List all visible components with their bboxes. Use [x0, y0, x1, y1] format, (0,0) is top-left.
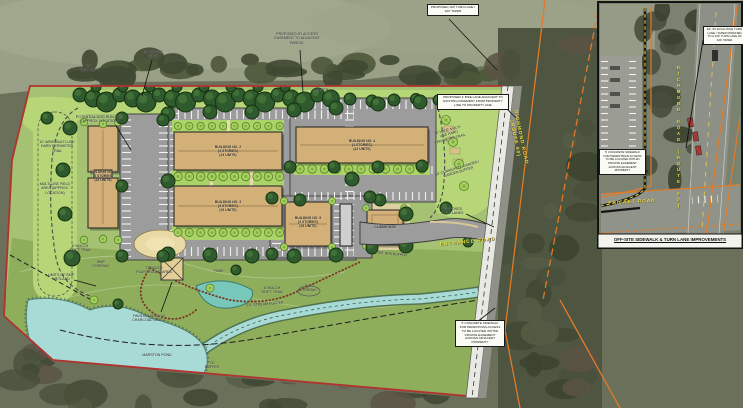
note-bike-lane: PROPOSED 4' BIKE LANE ADJACENT TO EXISTI… [437, 94, 509, 110]
label-playground: TODDLER PLAYGROUND AREA [135, 266, 173, 275]
label-perimeter-trail-west: 10' WIDE MULTI-USE HARD PERIMETER TRAIL [38, 140, 76, 153]
label-buffer-nw: 20' BUFFER [78, 64, 98, 73]
label-pavilion: PAVILION AREA W/ CHARCOAL GRILLS [128, 314, 170, 323]
label-dog-run: POTENTIAL DOG RUN AREA (APPROX. LOCATION… [73, 115, 127, 124]
label-building-1: BUILDING NO. 1 (3 STORIES) (24 UNITS) [86, 170, 120, 182]
label-park: PARK [207, 269, 231, 273]
note-turn-lane: PROPOSED 100' TURN LANE / 100' TAPER [427, 4, 479, 16]
label-wetland-limits: LIMITS OF BMP WETLAND [44, 273, 78, 282]
inset-label-richmond-road: RICHMOND ROAD (ROUTE 60) [676, 62, 681, 212]
site-plan-screenshot: 20' BUFFER EX. WATER AREA 20' BUFFER PRO… [0, 0, 743, 408]
inset-note-turn-lane: EX. 50' EXCLUSIVE TURN LANE / TAPER MODI… [703, 26, 743, 45]
label-building-4: BUILDING NO. 4 (3 STORIES) (42 UNITS) [340, 139, 384, 151]
label-forebay-west: BMP FOREBAY [89, 260, 113, 269]
label-building-5: BUILDING NO. 5 (3 STORIES) (24 UNITS) [288, 216, 328, 228]
label-buffer-ne: 20' BUFFER [311, 84, 331, 93]
label-pond: MARSTON POND [142, 353, 172, 357]
inset-note-sidewalk: 5' CONCRETE SIDEWALK FOR PEDESTRIAN ACCE… [599, 149, 646, 175]
note-sidewalk-main: 5' CONCRETE SIDEWALK FOR PEDESTRIAN ACCE… [455, 320, 505, 347]
label-field: MULTI-USE FIELD AREA (APPROX. LOCATION) [37, 182, 73, 195]
label-buffer-75: 75' BUFFER [202, 361, 222, 370]
inset-title: OFF-SITE SIDEWALK & TURN LANE IMPROVEMEN… [599, 237, 741, 242]
label-mulch-trail-west: 6' MULCH 'SOFT' TRAIL [66, 244, 94, 253]
label-forebay-east: BMP FOREBAY [297, 284, 321, 293]
label-proposed-turn: PROPOSED TURN LANES [437, 207, 467, 216]
label-building-2: BUILDING NO. 2 (3 STORIES) (24 UNITS) [206, 145, 250, 157]
garage-structure [340, 204, 352, 246]
label-water-area: EX. WATER AREA [140, 50, 166, 59]
label-building-3: BUILDING NO. 3 (3 STORIES) (24 UNITS) [206, 200, 250, 212]
label-mulch-trail-east: 6' MULCH 'SOFT' TRAIL [258, 286, 286, 295]
label-clubhouse: CLUBHOUSE [370, 225, 400, 229]
callout-access-easement: PROPOSED 20' ACCESS EASEMENT TO ADJACENT… [274, 32, 320, 45]
